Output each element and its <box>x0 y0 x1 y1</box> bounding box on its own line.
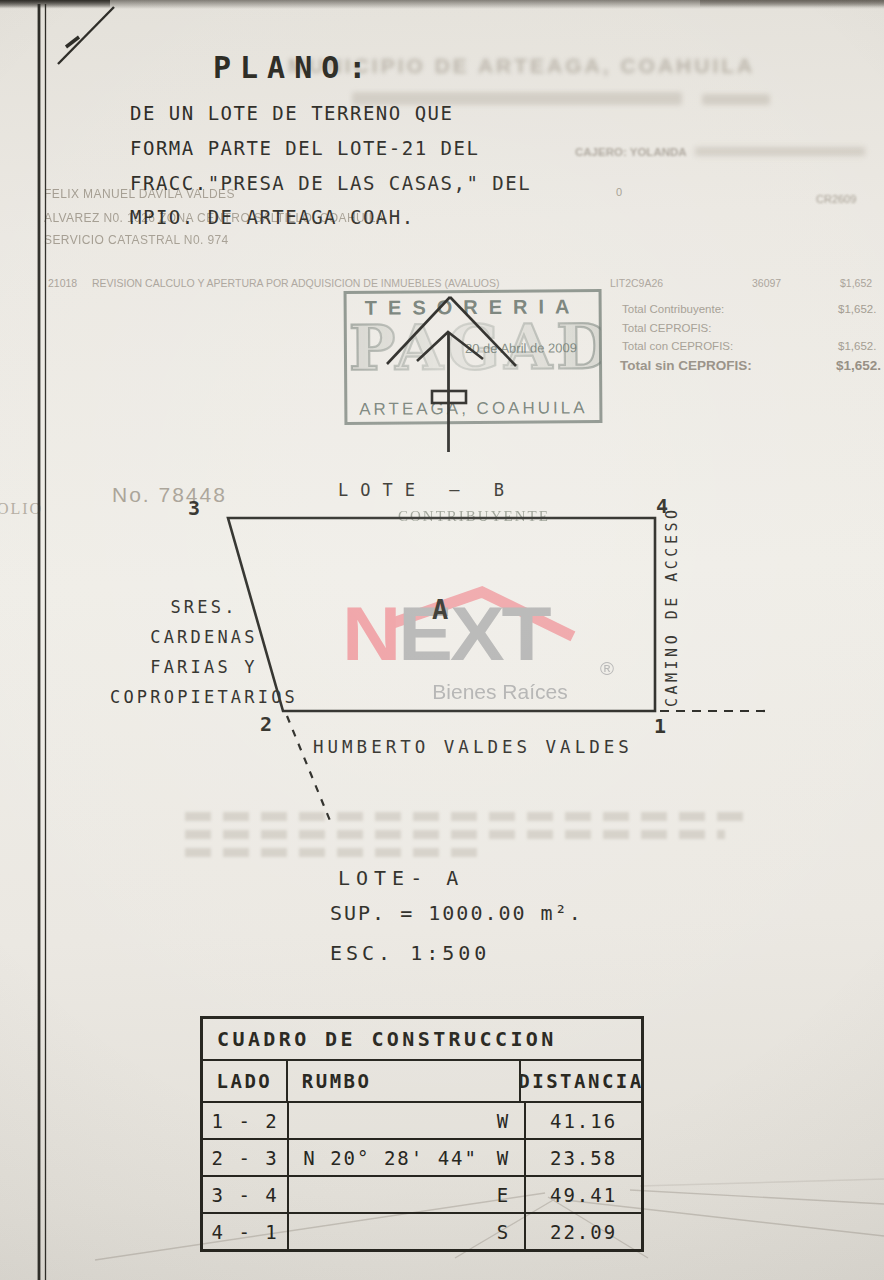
neighbor-line: CARDENAS <box>100 622 308 652</box>
corner-1-label: 1 <box>654 714 666 738</box>
boundary-extension-dashed-line <box>287 716 331 823</box>
neighbor-line: SRES. <box>100 592 308 622</box>
ghost-paragraph-line <box>185 848 485 857</box>
rumbo-direction: W <box>497 1147 510 1169</box>
table-row: 4 - 1 S 22.09 <box>203 1212 641 1249</box>
distancia-cell: 41.16 <box>526 1103 641 1138</box>
rumbo-direction: S <box>497 1221 510 1243</box>
neighbor-line: COPROPIETARIOS <box>100 682 308 712</box>
table-row: 1 - 2 W 41.16 <box>203 1101 641 1138</box>
table-title: CUADRO DE CONSTRUCCION <box>203 1019 641 1059</box>
lot-outline <box>228 518 770 823</box>
neighbor-line: FARIAS Y <box>100 652 308 682</box>
lado-cell: 1 - 2 <box>203 1103 289 1138</box>
col-header-lado: LADO <box>203 1061 288 1101</box>
neighbor-south-label: HUMBERTO VALDES VALDES <box>313 737 633 757</box>
lot-name: LOTE- A <box>338 866 464 890</box>
construction-table: CUADRO DE CONSTRUCCION LADO RUMBO DISTAN… <box>200 1016 644 1252</box>
col-header-rumbo: RUMBO <box>288 1061 521 1101</box>
lot-a-letter: A <box>432 594 448 625</box>
rumbo-direction: W <box>497 1110 510 1132</box>
rumbo-cell: W <box>289 1103 526 1138</box>
table-row: 2 - 3 N 20° 28' 44"W 23.58 <box>203 1138 641 1175</box>
col-header-distancia: DISTANCIA <box>521 1061 641 1101</box>
distancia-cell: 23.58 <box>526 1140 641 1175</box>
lot-scale: ESC. 1:500 <box>330 941 490 965</box>
corner-fold-line <box>58 7 114 64</box>
lado-cell: 3 - 4 <box>203 1177 289 1212</box>
corner-2-label: 2 <box>260 712 272 736</box>
ghost-paragraph-line <box>185 812 750 821</box>
rumbo-direction: E <box>497 1184 510 1206</box>
ghost-paragraph-line <box>185 830 725 839</box>
rumbo-cell: E <box>289 1177 526 1212</box>
distancia-cell: 49.41 <box>526 1177 641 1212</box>
lado-cell: 2 - 3 <box>203 1140 289 1175</box>
distancia-cell: 22.09 <box>526 1214 641 1249</box>
rumbo-cell: S <box>289 1214 526 1249</box>
camino-de-acceso-label: CAMINO DE ACCESO <box>663 517 683 707</box>
north-arrow-icon <box>387 297 516 452</box>
lot-surface: SUP. = 1000.00 m². <box>330 901 583 925</box>
scanned-plano-document: MUNICIPIO DE ARTEAGA, COAHUILA CAJERO: Y… <box>0 0 884 1280</box>
lado-cell: 4 - 1 <box>203 1214 289 1249</box>
rumbo-cell: N 20° 28' 44"W <box>289 1140 526 1175</box>
table-row: 3 - 4 E 49.41 <box>203 1175 641 1212</box>
table-header-row: LADO RUMBO DISTANCIA <box>203 1059 641 1101</box>
corner-3-label: 3 <box>188 496 200 520</box>
neighbors-west-label: SRES. CARDENAS FARIAS Y COPROPIETARIOS <box>100 592 308 712</box>
rumbo-angle: N 20° 28' 44" <box>303 1147 478 1169</box>
